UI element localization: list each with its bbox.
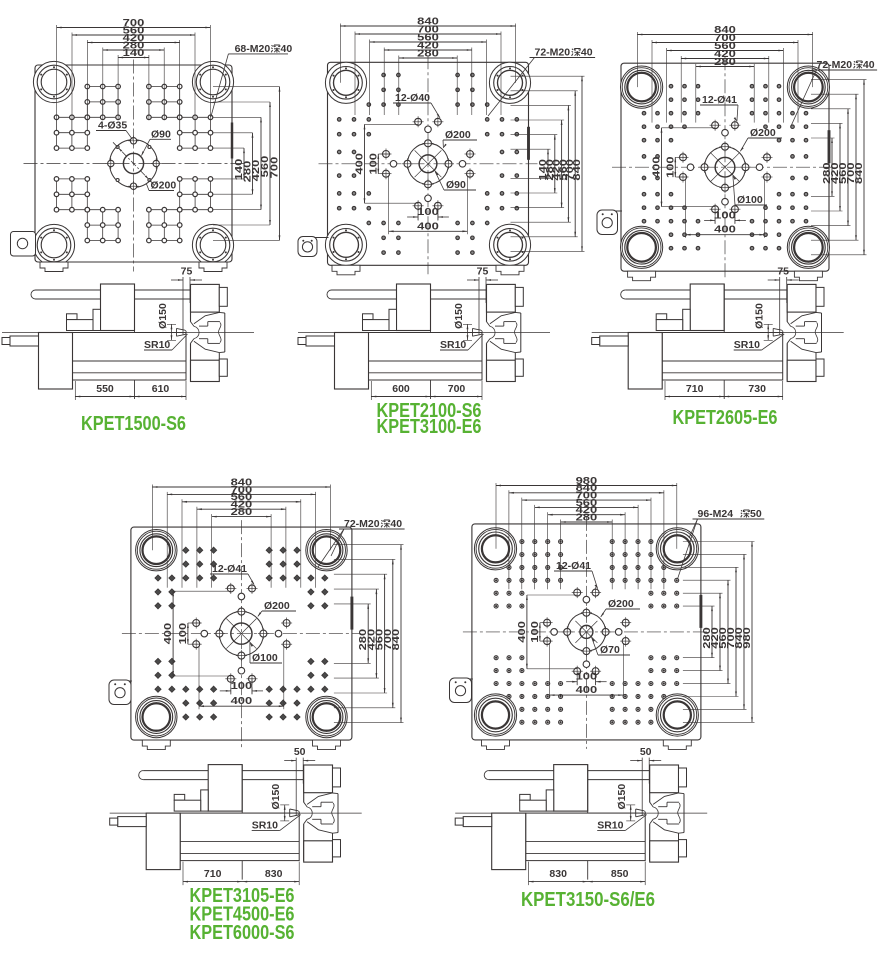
svg-text:280: 280 [417,48,439,59]
svg-text:Ø90: Ø90 [151,129,171,141]
svg-text:SR10: SR10 [252,820,278,832]
svg-text:75: 75 [477,266,489,278]
svg-text:Ø200: Ø200 [750,127,776,139]
svg-text:4-Ø35: 4-Ø35 [98,120,127,132]
svg-text:400: 400 [231,696,253,707]
svg-text:400: 400 [163,622,174,644]
svg-text:850: 850 [611,868,629,880]
svg-text:KPET1500-S6: KPET1500-S6 [81,412,186,435]
svg-text:40: 40 [863,59,875,71]
svg-text:75: 75 [181,266,193,278]
svg-text:50: 50 [750,508,762,520]
svg-text:SR10: SR10 [440,339,466,351]
svg-text:830: 830 [549,868,567,880]
svg-text:700: 700 [270,156,281,178]
svg-text:400: 400 [714,225,736,236]
svg-text:Ø70: Ø70 [600,644,620,656]
svg-text:Ø90: Ø90 [446,179,466,191]
svg-text:100: 100 [178,622,189,644]
svg-text:Ø150: Ø150 [157,303,169,329]
svg-text:610: 610 [152,383,170,395]
svg-text:Ø100: Ø100 [252,652,278,664]
svg-text:12-Ø41: 12-Ø41 [702,94,737,106]
svg-text:830: 830 [265,868,283,880]
svg-text:72-M20: 72-M20 [817,59,853,71]
svg-text:100: 100 [665,156,676,178]
svg-text:Ø200: Ø200 [445,129,471,141]
svg-text:96-M24: 96-M24 [698,508,734,520]
svg-text:Ø200: Ø200 [608,598,634,610]
svg-text:72-M20: 72-M20 [344,518,380,530]
svg-text:12-Ø41: 12-Ø41 [556,560,591,572]
svg-text:Ø150: Ø150 [616,784,628,810]
svg-text:100: 100 [231,681,253,692]
svg-text:840: 840 [572,158,583,180]
svg-text:KPET3150-S6/E6: KPET3150-S6/E6 [521,888,655,911]
svg-text:Ø200: Ø200 [151,180,177,192]
svg-text:SR10: SR10 [144,339,170,351]
svg-text:SR10: SR10 [734,339,760,351]
svg-text:KPET6000-S6: KPET6000-S6 [190,921,295,944]
svg-text:710: 710 [686,383,704,395]
svg-text:980: 980 [742,627,753,649]
svg-text:Ø150: Ø150 [270,784,282,810]
svg-text:SR10: SR10 [597,820,623,832]
svg-text:400: 400 [652,156,663,178]
svg-text:600: 600 [392,383,410,395]
svg-text:Ø150: Ø150 [754,303,766,329]
svg-text:40: 40 [581,47,593,59]
svg-text:40: 40 [390,518,402,530]
svg-text:KPET3100-E6: KPET3100-E6 [377,415,482,438]
svg-text:40: 40 [281,43,293,55]
svg-text:400: 400 [517,621,528,643]
svg-text:840: 840 [854,162,865,184]
svg-text:550: 550 [96,383,114,395]
svg-text:280: 280 [714,57,736,68]
svg-text:840: 840 [391,628,402,650]
svg-text:100: 100 [576,672,598,683]
svg-text:100: 100 [530,621,541,643]
svg-text:75: 75 [777,266,789,278]
svg-text:Ø100: Ø100 [737,194,763,206]
svg-text:50: 50 [294,746,306,758]
svg-text:730: 730 [748,383,766,395]
svg-text:68-M20: 68-M20 [235,43,271,55]
svg-text:50: 50 [640,746,652,758]
svg-text:100: 100 [368,152,379,174]
svg-text:12-Ø40: 12-Ø40 [395,92,430,104]
svg-text:700: 700 [448,383,466,395]
svg-text:400: 400 [417,221,439,232]
svg-text:12-Ø41: 12-Ø41 [212,563,247,575]
svg-text:Ø200: Ø200 [264,600,290,612]
svg-text:72-M20: 72-M20 [535,47,571,59]
svg-text:710: 710 [204,868,222,880]
svg-text:400: 400 [576,685,598,696]
svg-text:400: 400 [355,152,366,174]
svg-text:Ø150: Ø150 [453,303,465,329]
svg-text:280: 280 [576,512,598,523]
svg-text:100: 100 [714,210,736,221]
svg-text:KPET2605-E6: KPET2605-E6 [673,406,778,429]
svg-text:140: 140 [123,48,145,59]
svg-text:100: 100 [417,207,439,218]
svg-text:280: 280 [231,507,253,518]
